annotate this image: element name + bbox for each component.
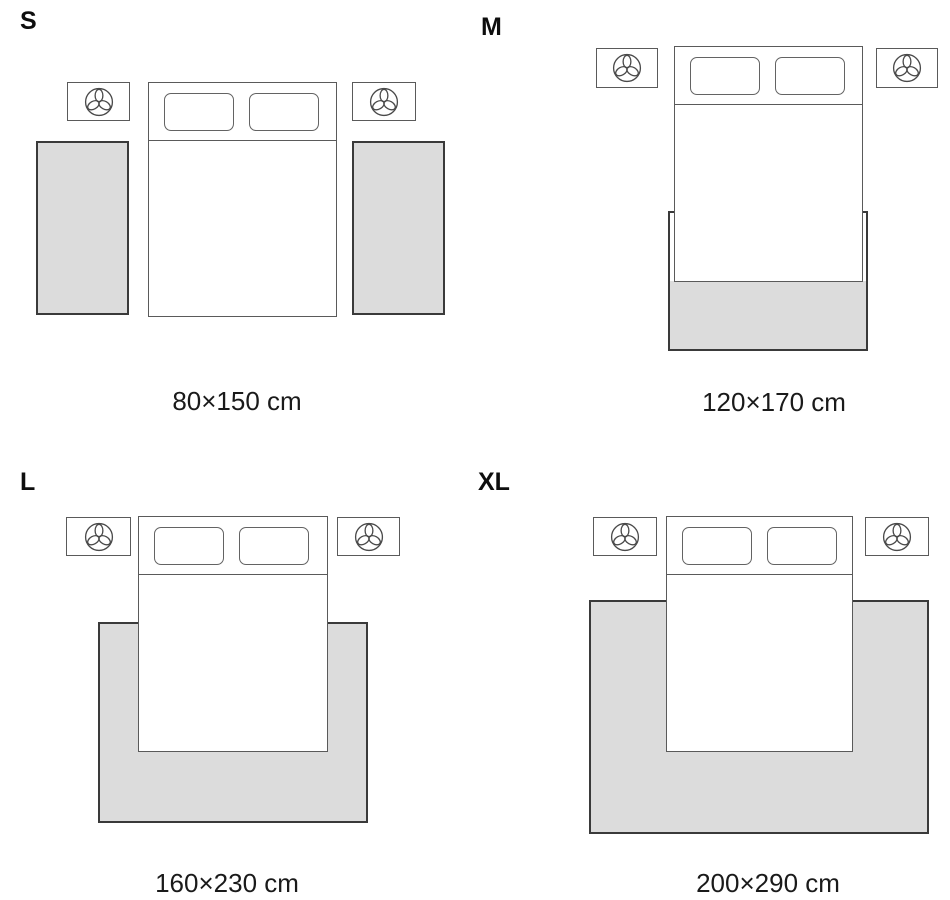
plant-icon [82,85,116,119]
nightstand-left [596,48,658,88]
size-label-l: L [20,470,35,495]
nightstand-right [337,517,400,556]
size-label-m: M [481,15,502,40]
rug-dimensions-s: 80×150 cm [172,388,301,414]
headboard-divider [148,140,337,141]
pillow-left [682,527,752,565]
pillow-left [690,57,760,95]
plant-icon [352,520,386,554]
plant-icon [610,51,644,85]
pillow-right [767,527,837,565]
rug-runner-left [36,141,129,315]
pillow-right [249,93,319,131]
nightstand-left [66,517,131,556]
pillow-left [164,93,234,131]
rug-dimensions-m: 120×170 cm [702,389,846,415]
bed [138,516,328,752]
rug-size-guide-diagram: S 80×150 cm M [0,0,950,900]
nightstand-right [876,48,938,88]
nightstand-left [67,82,130,121]
nightstand-right [865,517,929,556]
nightstand-left [593,517,657,556]
bed [148,82,337,317]
headboard-divider [674,104,863,105]
rug-visible-area [670,281,866,349]
pillow-left [154,527,224,565]
plant-icon [82,520,116,554]
bed [666,516,853,752]
plant-icon [890,51,924,85]
plant-icon [608,520,642,554]
pillow-right [775,57,845,95]
size-label-xl: XL [478,470,510,495]
headboard-divider [138,574,328,575]
size-label-s: S [20,9,37,34]
bed [674,46,863,282]
plant-icon [367,85,401,119]
headboard-divider [666,574,853,575]
plant-icon [880,520,914,554]
pillow-right [239,527,309,565]
rug-runner-right [352,141,445,315]
rug-dimensions-xl: 200×290 cm [696,870,840,896]
nightstand-right [352,82,416,121]
rug-dimensions-l: 160×230 cm [155,870,299,896]
